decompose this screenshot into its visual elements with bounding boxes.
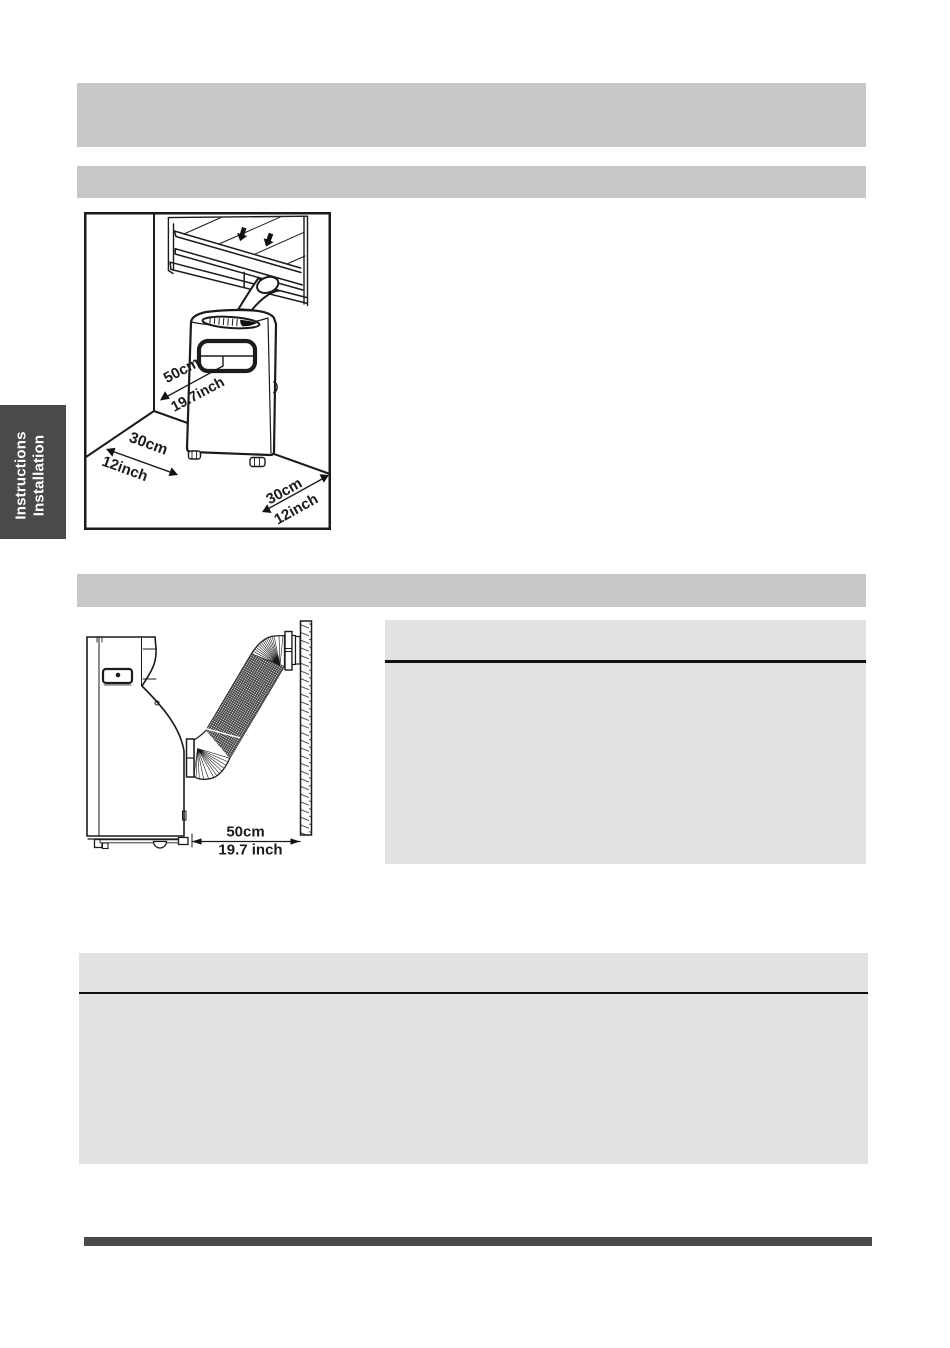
svg-text:12inch: 12inch bbox=[100, 453, 150, 485]
svg-text:19.7 inch: 19.7 inch bbox=[218, 842, 282, 859]
svg-text:30cm: 30cm bbox=[127, 429, 170, 459]
svg-text:50cm: 50cm bbox=[226, 824, 264, 841]
